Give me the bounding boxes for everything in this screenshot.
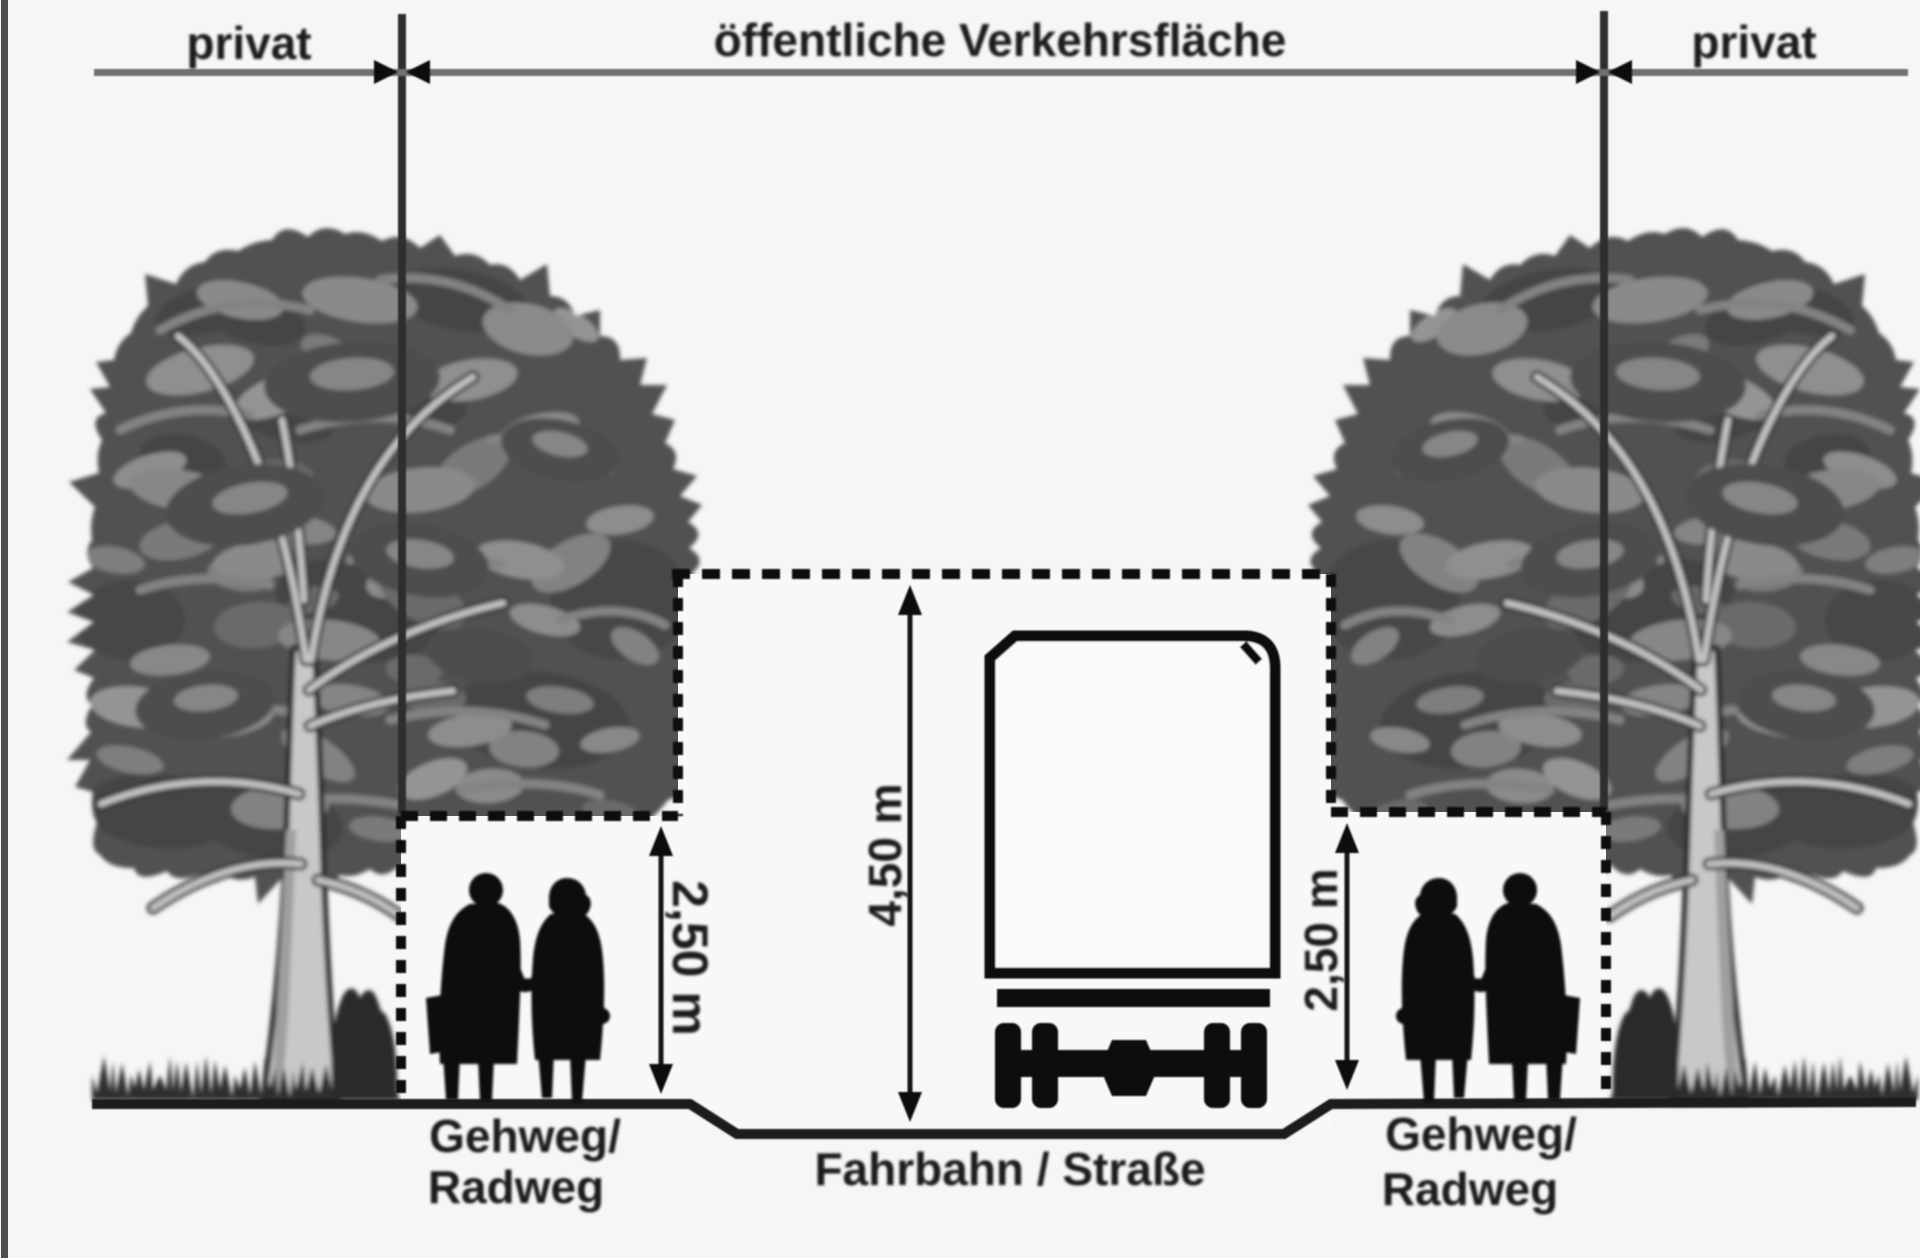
svg-text:Gehweg/: Gehweg/: [1385, 1108, 1577, 1160]
svg-text:Gehweg/: Gehweg/: [429, 1110, 621, 1162]
svg-text:2,50 m: 2,50 m: [1295, 868, 1347, 1011]
svg-text:2,50 m: 2,50 m: [662, 880, 718, 1036]
svg-text:Fahrbahn / Straße: Fahrbahn / Straße: [814, 1143, 1205, 1195]
svg-text:4,50 m: 4,50 m: [859, 783, 911, 926]
svg-text:öffentliche Verkehrsfläche: öffentliche Verkehrsfläche: [714, 14, 1287, 66]
svg-text:privat: privat: [186, 17, 311, 69]
svg-text:privat: privat: [1691, 16, 1816, 68]
svg-text:Radweg: Radweg: [1382, 1163, 1558, 1215]
svg-text:Radweg: Radweg: [428, 1161, 604, 1213]
